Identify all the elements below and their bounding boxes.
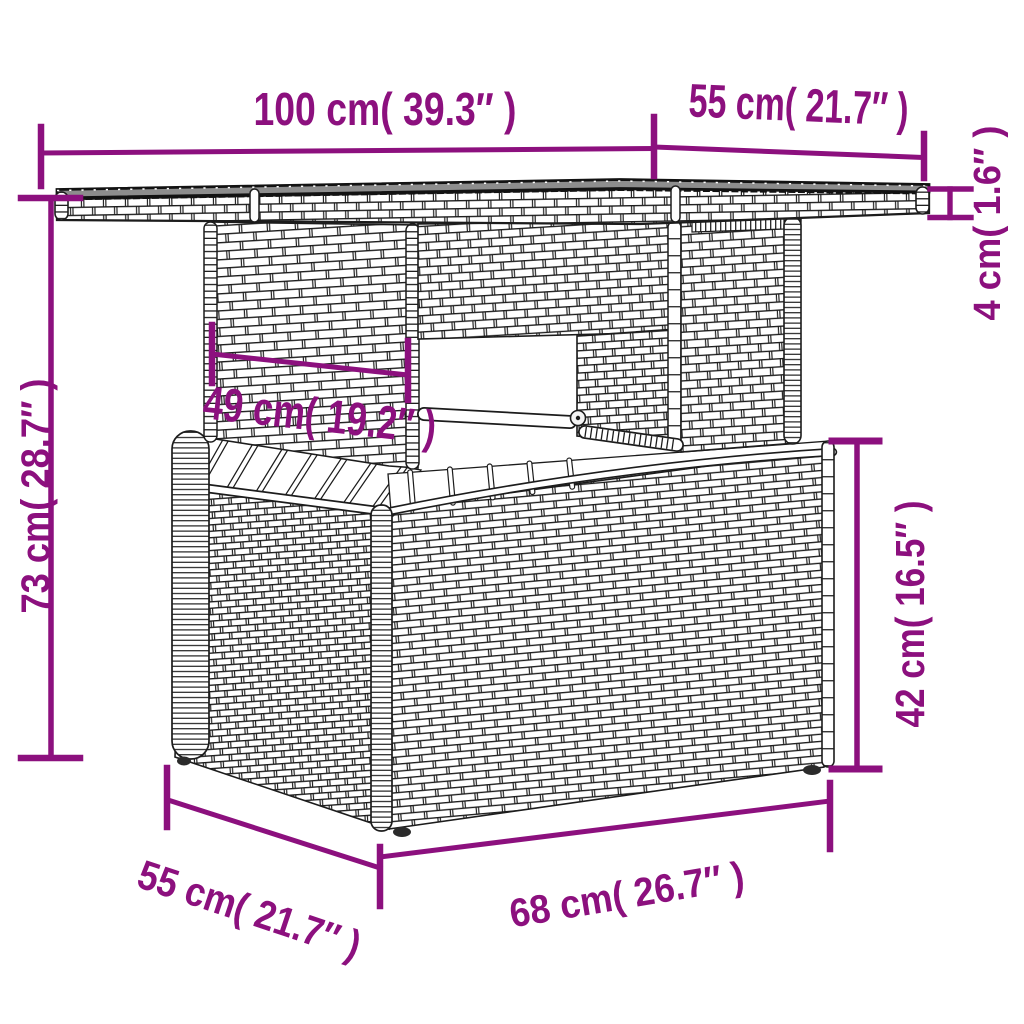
svg-text:42 cm( 16.5″ ): 42 cm( 16.5″ ) [887,501,933,728]
svg-text:100 cm( 39.3″ ): 100 cm( 39.3″ ) [254,83,517,135]
svg-text:55 cm( 21.7″ ): 55 cm( 21.7″ ) [688,73,910,135]
svg-text:4 cm( 1.6″ ): 4 cm( 1.6″ ) [967,126,1009,321]
svg-text:73 cm( 28.7″ ): 73 cm( 28.7″ ) [14,379,58,614]
